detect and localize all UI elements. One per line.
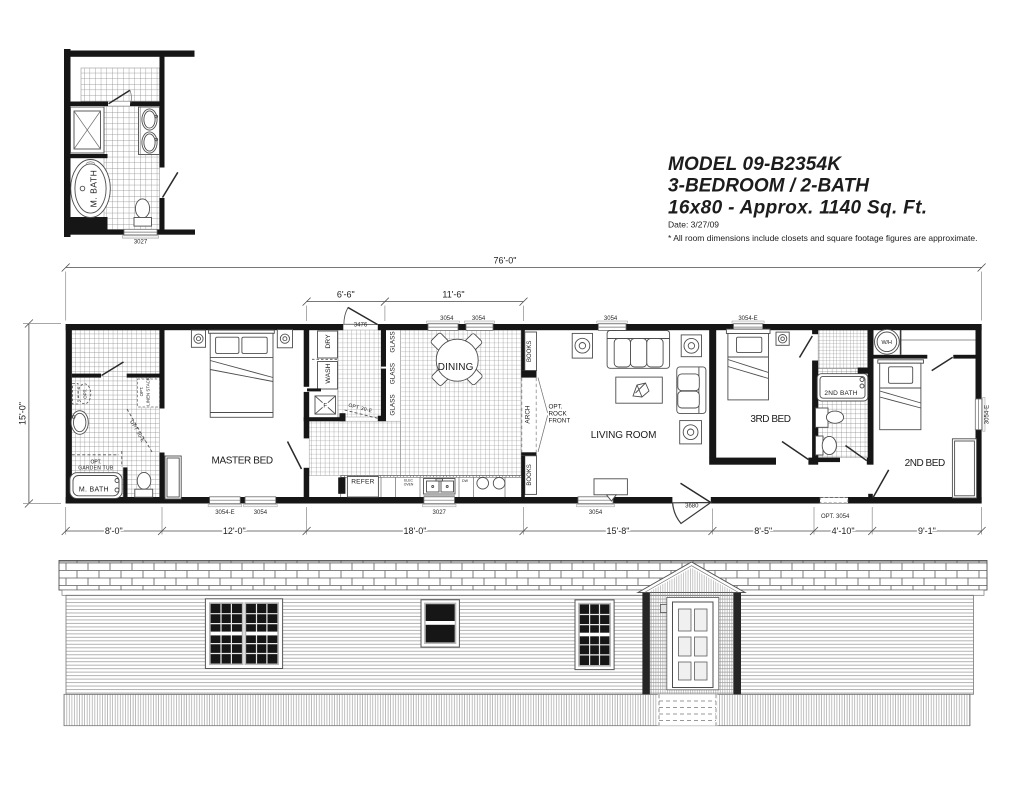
svg-text:3054-E: 3054-E [738, 316, 757, 322]
svg-text:3054: 3054 [440, 316, 454, 322]
svg-text:9'-1": 9'-1" [918, 526, 936, 536]
svg-text:3054: 3054 [604, 316, 618, 322]
svg-text:MASTER BED: MASTER BED [212, 456, 274, 467]
svg-text:DINING: DINING [438, 362, 474, 373]
svg-text:12'-0": 12'-0" [223, 526, 246, 536]
svg-text:F: F [323, 403, 327, 409]
svg-text:GARDEN TUB: GARDEN TUB [78, 465, 114, 471]
svg-text:WASH: WASH [325, 363, 332, 383]
svg-text:4'-10": 4'-10" [832, 526, 855, 536]
svg-text:2ND BED: 2ND BED [905, 458, 946, 469]
svg-text:* All room dimensions include: * All room dimensions include closets an… [668, 233, 977, 243]
svg-text:3476: 3476 [354, 322, 368, 328]
svg-text:3054: 3054 [472, 316, 486, 322]
svg-text:3027: 3027 [433, 510, 447, 516]
svg-text:ROCK: ROCK [549, 411, 568, 418]
svg-text:11'-6": 11'-6" [442, 290, 464, 300]
svg-text:3054: 3054 [589, 510, 603, 516]
svg-text:LIVING ROOM: LIVING ROOM [591, 430, 657, 441]
svg-text:3054-E: 3054-E [215, 510, 234, 516]
svg-text:8'-0": 8'-0" [105, 526, 123, 536]
svg-text:3054-E: 3054-E [985, 405, 991, 424]
svg-text:DRY: DRY [325, 334, 332, 349]
svg-text:15'-0": 15'-0" [18, 402, 28, 425]
svg-text:BOOKS: BOOKS [527, 341, 533, 362]
svg-text:3-BEDROOM / 2-BATH: 3-BEDROOM / 2-BATH [668, 176, 870, 197]
svg-text:ARCH: ARCH [525, 405, 532, 423]
svg-text:8'-5": 8'-5" [754, 526, 772, 536]
svg-text:OPT.: OPT. [139, 387, 144, 397]
svg-text:OPT. 3054: OPT. 3054 [821, 514, 850, 520]
svg-text:3054: 3054 [254, 510, 268, 516]
svg-text:OPT.: OPT. [83, 389, 88, 399]
svg-text:GLASS: GLASS [390, 363, 397, 384]
svg-text:GLASS: GLASS [390, 394, 397, 415]
svg-text:3RD BED: 3RD BED [750, 414, 791, 425]
svg-text:18'-0": 18'-0" [404, 526, 427, 536]
svg-text:76'-0": 76'-0" [494, 256, 517, 266]
svg-text:FRONT: FRONT [549, 418, 571, 425]
svg-text:W/H: W/H [881, 340, 892, 346]
svg-text:15'-8": 15'-8" [607, 526, 630, 536]
svg-text:OPT.: OPT. [549, 404, 563, 411]
svg-text:2ND BATH: 2ND BATH [824, 390, 857, 397]
svg-text:DW: DW [462, 479, 469, 483]
svg-text:BOOKS: BOOKS [527, 464, 533, 485]
svg-text:MODEL 09-B2354K: MODEL 09-B2354K [668, 154, 842, 175]
svg-text:OVEN: OVEN [404, 482, 414, 486]
svg-text:Date: 3/27/09: Date: 3/27/09 [668, 220, 719, 230]
svg-text:GLASS: GLASS [390, 331, 397, 352]
svg-text:REFER: REFER [351, 479, 374, 486]
svg-text:6'-6": 6'-6" [337, 290, 355, 300]
svg-text:16x80 - Approx. 1140 Sq. Ft.: 16x80 - Approx. 1140 Sq. Ft. [668, 198, 927, 219]
svg-text:3027: 3027 [134, 240, 148, 246]
svg-text:M. BATH: M. BATH [79, 487, 109, 494]
svg-text:LINEN STACK: LINEN STACK [146, 377, 151, 406]
svg-text:3680: 3680 [685, 503, 699, 509]
svg-text:M. BATH: M. BATH [89, 170, 99, 208]
